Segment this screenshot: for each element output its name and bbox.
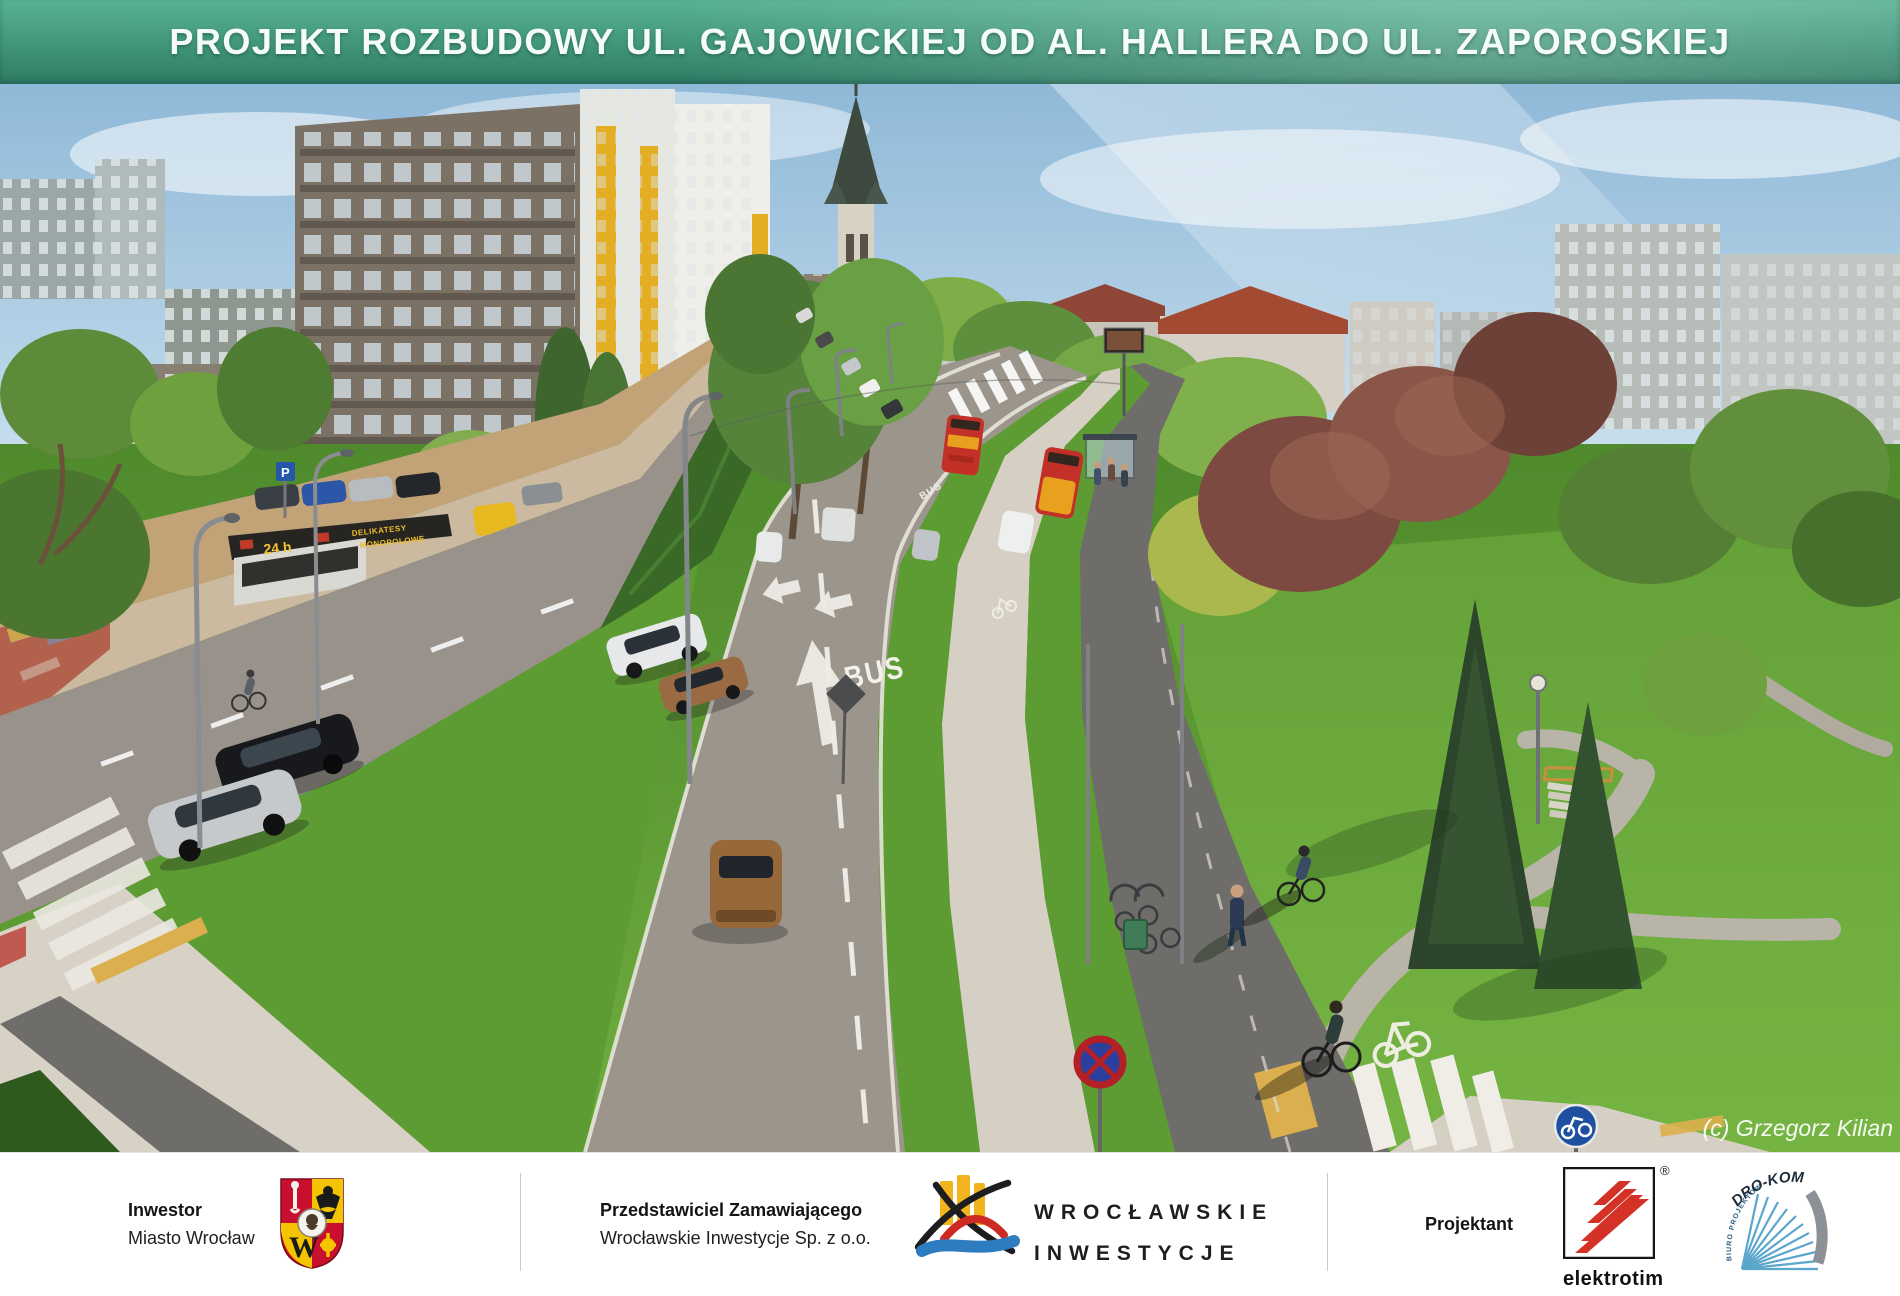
investor-value: Miasto Wrocław	[128, 1229, 255, 1247]
trash-bin	[1124, 920, 1147, 949]
wroclaw-coat-of-arms: W	[278, 1175, 346, 1271]
svg-text:P: P	[281, 465, 290, 480]
wi-line1: WROCŁAWSKIE	[1034, 1201, 1273, 1225]
representative-label: Przedstawiciel Zamawiającego	[600, 1201, 871, 1219]
bus-1	[941, 414, 985, 476]
render-canvas: 24 h DELIKATESY MONOPOLOWE P	[0, 84, 1900, 1152]
registered-mark: ®	[1660, 1163, 1670, 1178]
representative-block: Przedstawiciel Zamawiającego Wrocławskie…	[600, 1201, 871, 1247]
elektrotim-logo: ® elektrotim	[1563, 1167, 1673, 1291]
designer-label: Projektant	[1425, 1215, 1513, 1233]
footer-divider-2	[1327, 1173, 1328, 1271]
white-suv-far	[997, 510, 1035, 555]
footer: Inwestor Miasto Wrocław W	[0, 1152, 1900, 1296]
wi-line2: INWESTYCJE	[1034, 1242, 1273, 1266]
drokom-logo: DRO-KOM BIURO PROJEKTOWE	[1722, 1161, 1834, 1283]
kiosk-hours-sign: 24 h	[263, 539, 292, 557]
footer-divider-1	[520, 1173, 521, 1271]
image-credit: (c) Grzegorz Kilian	[1703, 1115, 1893, 1141]
white-car	[755, 531, 783, 563]
elektrotim-name: elektrotim	[1563, 1268, 1655, 1291]
wi-logo-text: WROCŁAWSKIE INWESTYCJE	[1034, 1201, 1273, 1266]
wroclawskie-inwestycje-logo	[908, 1165, 1026, 1269]
street-visualization: 24 h DELIKATESY MONOPOLOWE P	[0, 84, 1900, 1152]
investor-block: Inwestor Miasto Wrocław	[128, 1201, 255, 1247]
fan-lines	[1742, 1194, 1818, 1269]
representative-value: Wrocławskie Inwestycje Sp. z o.o.	[600, 1229, 871, 1247]
investor-label: Inwestor	[128, 1201, 255, 1219]
page-title: PROJEKT ROZBUDOWY UL. GAJOWICKIEJ OD AL.…	[169, 21, 1730, 63]
white-van	[821, 507, 856, 542]
elektrotim-mark	[1563, 1167, 1655, 1259]
header-banner: PROJEKT ROZBUDOWY UL. GAJOWICKIEJ OD AL.…	[0, 0, 1900, 84]
project-poster: PROJEKT ROZBUDOWY UL. GAJOWICKIEJ OD AL.…	[0, 0, 1900, 1296]
river-wave	[922, 1241, 1014, 1251]
